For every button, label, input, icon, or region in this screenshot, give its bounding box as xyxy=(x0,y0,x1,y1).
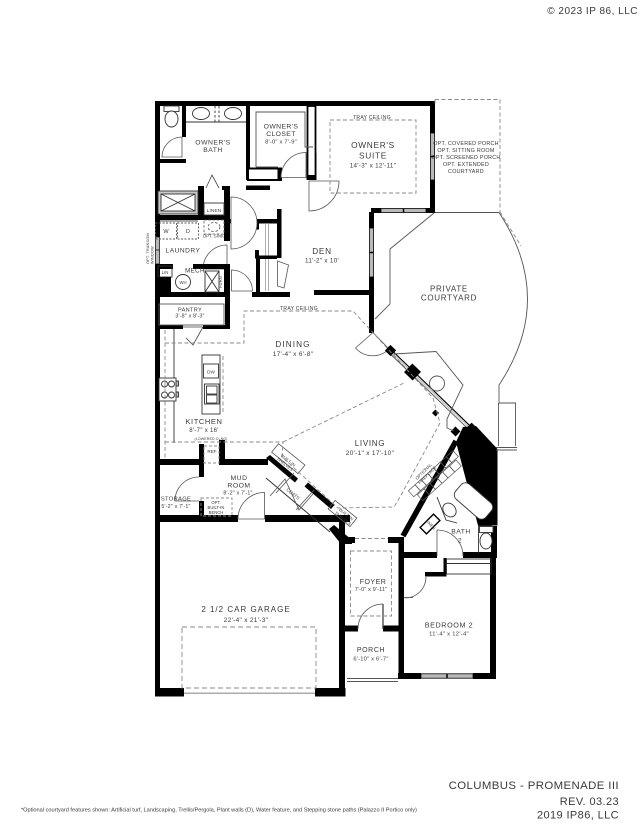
svg-text:BATH: BATH xyxy=(203,147,223,154)
svg-text:MECH: MECH xyxy=(185,268,205,275)
svg-text:(LOWERED CLNG): (LOWERED CLNG) xyxy=(195,437,228,441)
svg-text:COURTYARD: COURTYARD xyxy=(448,169,484,175)
svg-text:CLOSET: CLOSET xyxy=(266,131,296,138)
svg-text:MUD: MUD xyxy=(231,475,248,482)
svg-text:7'-0" x 9'-11": 7'-0" x 9'-11" xyxy=(355,587,388,593)
svg-text:STORAGE: STORAGE xyxy=(161,497,191,503)
svg-text:5'-2" x 7'-1": 5'-2" x 7'-1" xyxy=(161,504,190,510)
svg-text:DW: DW xyxy=(207,370,215,375)
svg-text:OWNER'S: OWNER'S xyxy=(351,140,395,150)
svg-text:2 1/2 CAR GARAGE: 2 1/2 CAR GARAGE xyxy=(201,605,290,614)
svg-text:11'-2" x 10': 11'-2" x 10' xyxy=(305,258,339,265)
svg-text:REF: REF xyxy=(207,449,216,454)
svg-text:LIVING: LIVING xyxy=(355,439,385,448)
svg-text:WINDOW: WINDOW xyxy=(151,246,155,264)
svg-text:LAUNDRY: LAUNDRY xyxy=(166,248,201,255)
svg-text:COURTYARD: COURTYARD xyxy=(421,294,477,303)
svg-text:BENCH: BENCH xyxy=(209,510,224,515)
svg-text:14'-3" x 12'-11": 14'-3" x 12'-11" xyxy=(350,163,397,170)
svg-text:OWNER'S: OWNER'S xyxy=(195,140,230,147)
svg-text:BATH: BATH xyxy=(451,529,471,536)
svg-text:COATS: COATS xyxy=(285,487,300,501)
svg-text:OPT. COVERED PORCH: OPT. COVERED PORCH xyxy=(433,141,499,147)
svg-text:OWNER'S: OWNER'S xyxy=(264,124,299,131)
svg-text:SUITE: SUITE xyxy=(359,151,387,161)
svg-text:DINING: DINING xyxy=(275,340,310,349)
svg-text:17'-4" x 6'-8": 17'-4" x 6'-8" xyxy=(273,351,314,358)
svg-text:FURN: FURN xyxy=(218,276,223,288)
svg-text:PORCH: PORCH xyxy=(357,647,385,654)
svg-text:REV. 03.23: REV. 03.23 xyxy=(560,796,619,808)
svg-text:COLUMBUS - PROMENADE III: COLUMBUS - PROMENADE III xyxy=(449,780,619,792)
svg-text:OPT. SCREENED PORCH: OPT. SCREENED PORCH xyxy=(431,155,500,161)
svg-text:KITCHEN: KITCHEN xyxy=(185,417,222,426)
svg-text:LIN: LIN xyxy=(162,270,169,275)
svg-text:PRIVATE: PRIVATE xyxy=(430,285,468,294)
svg-text:TRAY CEILING: TRAY CEILING xyxy=(353,115,391,121)
svg-text:8'-7" x 16': 8'-7" x 16' xyxy=(189,428,218,434)
svg-text:© 2023 IP 86, LLC: © 2023 IP 86, LLC xyxy=(547,6,638,17)
svg-text:*Optional courtyard features s: *Optional courtyard features shown: Arti… xyxy=(21,808,417,814)
svg-text:8'-0" x 7'-9": 8'-0" x 7'-9" xyxy=(265,140,297,146)
svg-text:2019 IP86, LLC: 2019 IP86, LLC xyxy=(537,810,619,822)
svg-text:ROOM: ROOM xyxy=(227,483,250,490)
svg-text:6'-10" x 6'-7": 6'-10" x 6'-7" xyxy=(353,657,388,663)
svg-text:OPT. SITTING ROOM: OPT. SITTING ROOM xyxy=(437,148,495,154)
svg-text:11'-4" x 12'-4": 11'-4" x 12'-4" xyxy=(429,632,469,638)
svg-text:8'-2" x 7'-1": 8'-2" x 7'-1" xyxy=(223,491,252,497)
svg-text:BEDROOM 2: BEDROOM 2 xyxy=(425,621,474,630)
svg-text:FOYER: FOYER xyxy=(360,579,387,586)
svg-text:D: D xyxy=(186,229,190,235)
svg-text:20'-1" x 17'-10": 20'-1" x 17'-10" xyxy=(346,450,395,457)
svg-text:OPT. SINK: OPT. SINK xyxy=(203,234,224,239)
svg-text:22'-4" x 21'-3": 22'-4" x 21'-3" xyxy=(224,617,269,624)
svg-text:DEN: DEN xyxy=(312,247,331,256)
svg-text:2: 2 xyxy=(458,538,462,545)
svg-text:LINEN: LINEN xyxy=(207,208,222,213)
svg-text:OPT. TRANSOM: OPT. TRANSOM xyxy=(146,233,150,264)
svg-text:W: W xyxy=(163,229,169,235)
svg-text:TRAY CEILING: TRAY CEILING xyxy=(280,306,318,312)
svg-text:WH: WH xyxy=(180,280,187,285)
svg-text:3'-8" x 8'-3": 3'-8" x 8'-3" xyxy=(175,314,204,320)
svg-text:OPT. EXTENDED: OPT. EXTENDED xyxy=(443,162,489,168)
